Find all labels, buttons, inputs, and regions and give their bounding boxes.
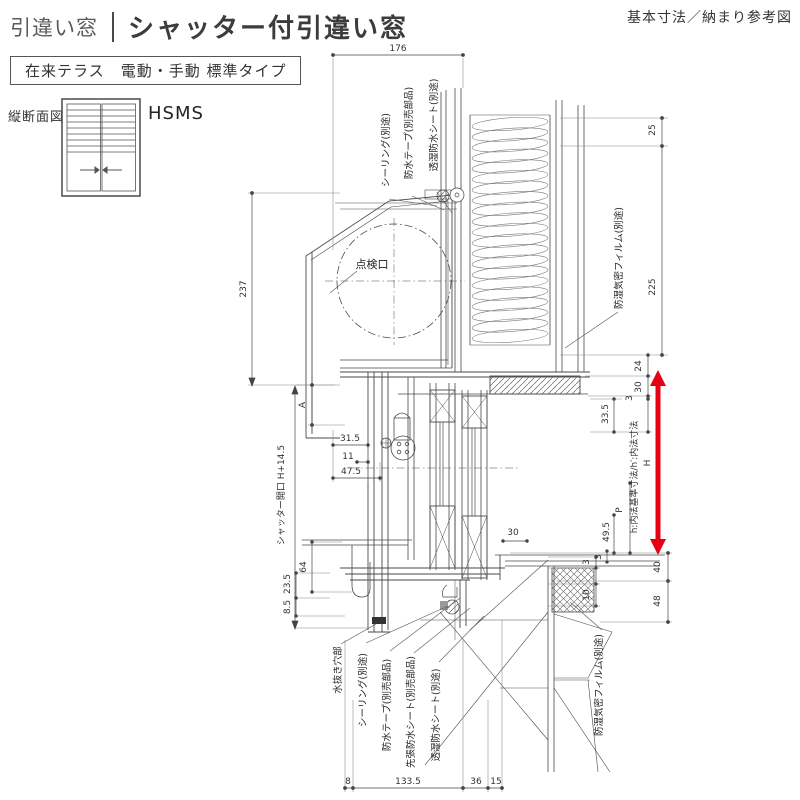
- dim-10: 10: [582, 589, 592, 601]
- shutter-opening-label: シャッター開口 H+14.5: [276, 445, 287, 545]
- dim-top-width: 176: [389, 44, 406, 54]
- dim-a: A: [298, 401, 308, 408]
- callout-breathable-sheet-bottom: 透湿防水シート(別途): [430, 669, 442, 762]
- dim-3-upper: 3: [625, 395, 635, 401]
- sill-section: [340, 555, 505, 628]
- callout-breathable-sheet-top: 透湿防水シート(別途): [428, 79, 440, 172]
- dim-25: 25: [648, 124, 658, 135]
- dim-48: 48: [653, 595, 663, 607]
- callout-waterproof-tape-bottom: 防水テープ(別売部品): [381, 659, 393, 751]
- callout-waterproof-tape-top: 防水テープ(別売部品): [403, 87, 415, 179]
- mini-elevation-diagram: [62, 99, 140, 196]
- shutter-operator-unit: [381, 413, 415, 460]
- dim-36: 36: [470, 777, 482, 787]
- dim-8: 8: [345, 777, 351, 787]
- callout-drain-hole: 水抜き穴部: [332, 646, 344, 694]
- dim-15: 15: [490, 777, 501, 787]
- drain-outlet: [372, 617, 386, 624]
- dim-8-5: 8.5: [283, 600, 293, 614]
- dim-33-5: 33.5: [601, 404, 611, 424]
- slide-direction-arrows: [80, 167, 122, 173]
- dim-H: H: [643, 460, 653, 467]
- callout-sealing-bottom: シーリング(別途): [357, 653, 369, 727]
- lintel-hatched: [490, 376, 580, 394]
- dim-24: 24: [634, 360, 644, 372]
- dim-225: 225: [648, 278, 658, 295]
- dim-133-5: 133.5: [395, 777, 421, 787]
- dim-23-5: 23.5: [283, 574, 293, 594]
- inspection-port-label: 点検口: [356, 257, 389, 271]
- dim-P: P: [615, 507, 625, 513]
- outer-sash: [430, 383, 455, 570]
- dim-40: 40: [653, 561, 663, 573]
- dim-3-sill: 3: [594, 554, 604, 560]
- dim-11: 11: [342, 452, 353, 462]
- callout-vapor-film-bottom: 防湿気密フィルム(別途): [593, 634, 605, 736]
- page: 引違い窓 シャッター付引違い窓 基本寸法／納まり参考図 在来テラス 電動・手動 …: [0, 0, 800, 800]
- inner-dimension-note: h:内法基準寸法/h′:内法寸法: [628, 421, 640, 534]
- insulation-batts: [472, 115, 549, 345]
- dim-30-window: 30: [507, 528, 519, 538]
- dim-47-5: 47.5: [341, 467, 361, 477]
- window-sash-section: [302, 372, 590, 628]
- dim-49-5: 49.5: [602, 522, 612, 542]
- callout-pre-waterproof-sheet: 先張防水シート(別売部品): [405, 656, 417, 768]
- callout-vapor-film-right: 防湿気密フィルム(別途): [613, 207, 625, 309]
- section-drawing: 176 シーリング(別途) 防水テープ(別売部品) 透湿防水シート(別途) 防湿…: [0, 0, 800, 800]
- dim-64: 64: [299, 561, 309, 573]
- dim-box-height: 237: [239, 280, 249, 297]
- callout-sealing-top: シーリング(別途): [380, 113, 392, 187]
- inner-sash: [462, 390, 487, 580]
- dim-30-right: 30: [634, 381, 644, 393]
- shutter-slats: [67, 110, 135, 152]
- dim-31-5: 31.5: [340, 434, 360, 444]
- dim-3-floor: 3: [582, 559, 592, 565]
